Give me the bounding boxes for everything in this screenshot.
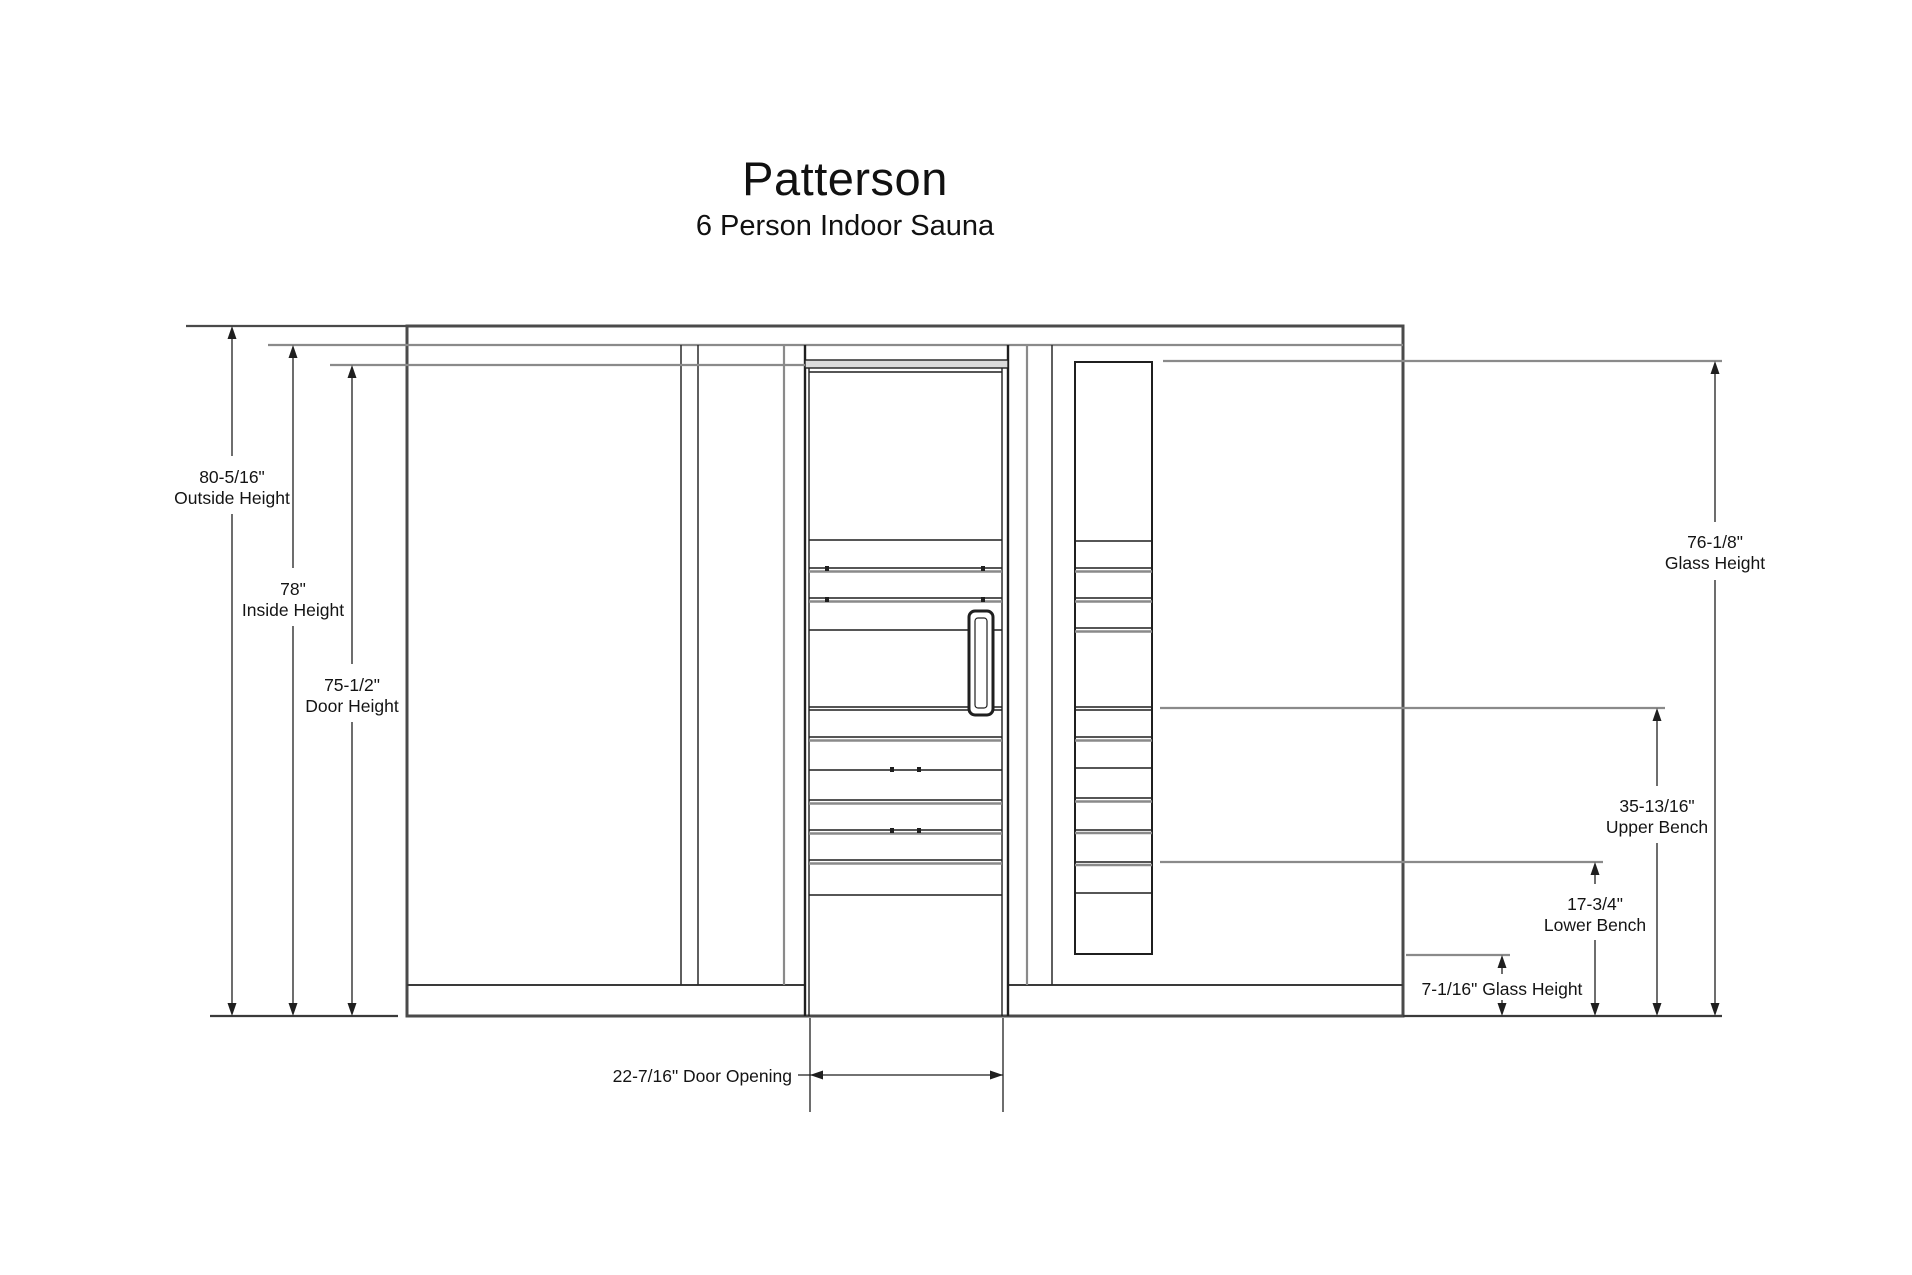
dim-door-opening: 22-7/16" Door Opening (613, 1018, 1003, 1112)
dim-glass-height-label: Glass Height (1665, 553, 1765, 573)
dim-upper-bench-label: Upper Bench (1606, 817, 1708, 837)
dim-glass-height-bottom: 7-1/16" Glass Height (1422, 955, 1583, 1016)
dim-outside-height-value: 80-5/16" (199, 467, 265, 487)
right-panel-rails (1075, 541, 1152, 893)
dim-glass-height-bottom-text: 7-1/16" Glass Height (1422, 979, 1583, 999)
right-panel-rail-shadows (1075, 572, 1152, 866)
dim-glass-height: 76-1/8" Glass Height (1665, 361, 1765, 1016)
dim-outside-height-label: Outside Height (174, 488, 290, 508)
dim-outside-height: 80-5/16" Outside Height (174, 326, 290, 1016)
sauna-outline (268, 326, 1403, 1016)
title-block: Patterson 6 Person Indoor Sauna (345, 150, 1345, 244)
wall-panel-joints (681, 345, 1052, 985)
door-fastener-ticks (825, 566, 985, 833)
dim-door-opening-text: 22-7/16" Door Opening (613, 1066, 792, 1086)
dim-glass-height-value: 76-1/8" (1687, 532, 1743, 552)
door-head-jamb (805, 360, 1008, 368)
dim-lower-bench-label: Lower Bench (1544, 915, 1646, 935)
dim-upper-bench-value: 35-13/16" (1619, 796, 1694, 816)
door-handle (969, 611, 993, 715)
dim-door-height-label: Door Height (305, 696, 399, 716)
page-title: Patterson (345, 150, 1345, 208)
dim-door-height-value: 75-1/2" (324, 675, 380, 695)
dim-lower-bench-value: 17-3/4" (1567, 894, 1623, 914)
dim-inside-height-value: 78" (280, 579, 306, 599)
dim-door-height: 75-1/2" Door Height (305, 365, 399, 1016)
right-glass-panel (1075, 362, 1152, 954)
extension-lines (186, 326, 1722, 1016)
door-assembly (784, 345, 1027, 1016)
dim-upper-bench: 35-13/16" Upper Bench (1606, 708, 1708, 1016)
dim-inside-height-label: Inside Height (242, 600, 344, 620)
drawing-canvas: Patterson 6 Person Indoor Sauna (0, 0, 1912, 1275)
page-subtitle: 6 Person Indoor Sauna (345, 208, 1345, 244)
